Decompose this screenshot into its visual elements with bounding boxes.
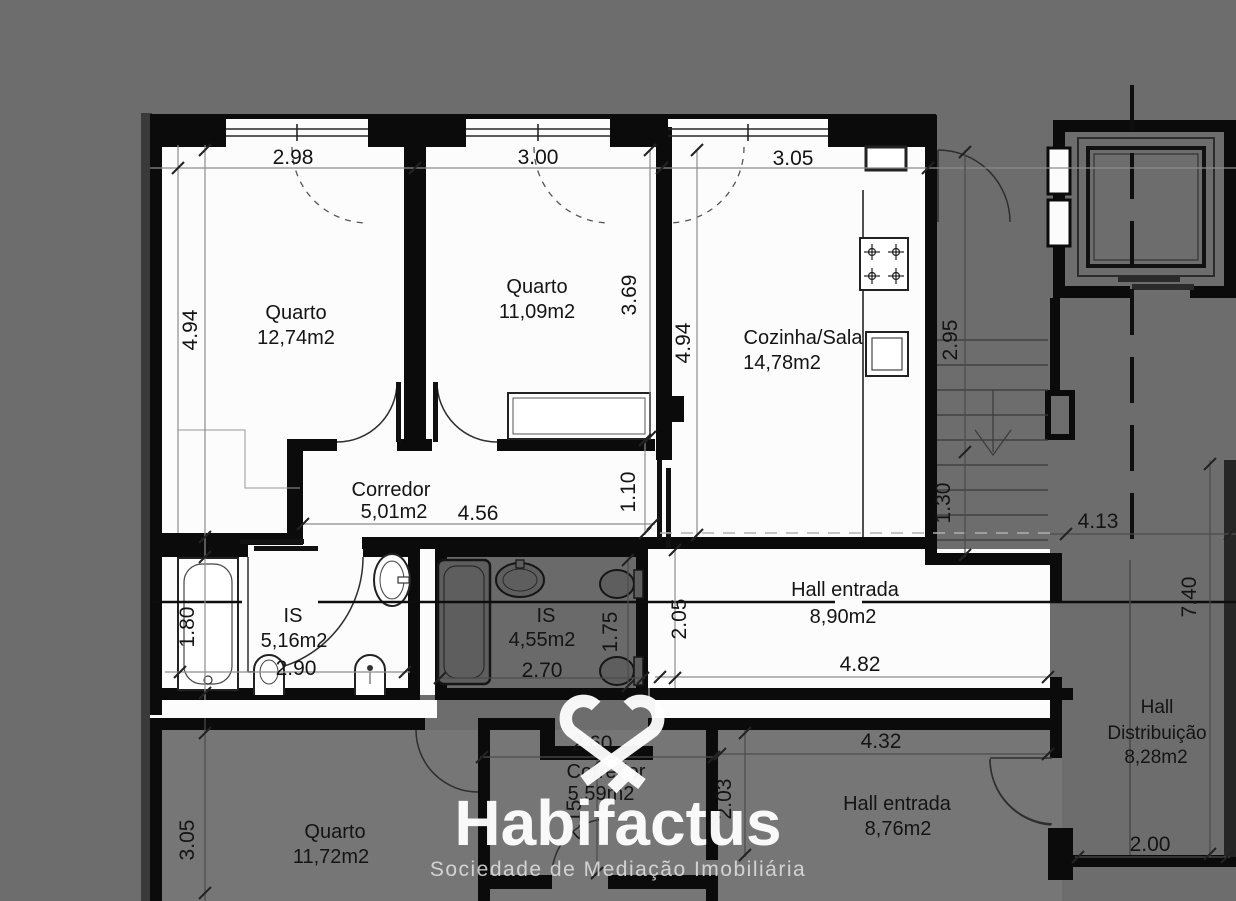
room-label-lower-hall-name: Hall entrada	[843, 793, 952, 815]
elevator-door	[1118, 276, 1180, 282]
dim-hall1-length: 4.82	[840, 653, 881, 676]
room-label-cozinha-name: Cozinha/Sala	[744, 327, 864, 349]
room-label-halldist-line1: Hall	[1141, 697, 1174, 718]
dim-corredor-width: 1.10	[617, 472, 640, 513]
pillar	[828, 114, 935, 147]
landing-wall	[930, 553, 1062, 565]
dim-is1-height: 1.80	[176, 607, 199, 648]
dim-halldist-width: 4.13	[1078, 510, 1119, 533]
dim-is1-width: 2.90	[276, 657, 317, 680]
floor-plan-svg: Quarto 12,74m2 Quarto 11,09m2 Cozinha/Sa…	[0, 0, 1236, 901]
sliding-door	[657, 460, 662, 540]
room-label-hall1-name: Hall entrada	[791, 579, 900, 601]
room-label-quarto2-area: 11,09m2	[499, 301, 575, 323]
dim-stairs-run: 1.30	[932, 483, 955, 524]
dim-lower-quarto-height: 3.05	[176, 820, 199, 861]
sliding-door	[240, 539, 304, 544]
cooktop	[860, 238, 908, 290]
dim-quarto2-height: 3.69	[618, 275, 641, 316]
room-label-halldist-area: 8,28m2	[1124, 747, 1187, 768]
dim-cozinha-width: 3.05	[773, 147, 814, 170]
room-label-lower-quarto-name: Quarto	[304, 821, 365, 843]
dim-stairs-width: 2.95	[939, 320, 962, 361]
pillar	[1048, 828, 1073, 880]
room-label-is2-name: IS	[537, 605, 556, 627]
dim-is2-width: 2.70	[522, 659, 563, 682]
dim-quarto1-height: 4.94	[179, 309, 202, 350]
watermark-tagline: Sociedade de Mediação Imobiliária	[430, 858, 806, 881]
room-label-corredor-area: 5,01m2	[361, 501, 428, 523]
bathtub-shaded	[438, 560, 490, 684]
dim-quarto1-width: 2.98	[273, 146, 314, 169]
duct-shaft	[1048, 148, 1070, 194]
room-label-lower-quarto-area: 11,72m2	[293, 846, 369, 868]
dim-halldist-lower: 2.00	[1130, 833, 1171, 856]
duct-shaft	[1048, 200, 1070, 246]
room-label-quarto2-name: Quarto	[506, 276, 567, 298]
dim-lower-hall-length: 4.32	[861, 730, 902, 753]
room-label-quarto1-name: Quarto	[265, 302, 326, 324]
toilet-shaded	[600, 570, 634, 598]
floorplan-canvas: Quarto 12,74m2 Quarto 11,09m2 Cozinha/Sa…	[0, 0, 1236, 901]
hall-bottom-wall	[650, 688, 1073, 700]
room-label-quarto1-area: 12,74m2	[257, 327, 335, 349]
wardrobe	[508, 393, 650, 439]
quarto-divider-wall	[404, 127, 426, 443]
dim-corredor-length: 4.56	[458, 502, 499, 525]
room-label-is1-name: IS	[284, 605, 303, 627]
dim-halldist-depth: 7.40	[1178, 577, 1201, 618]
dim-is2-height: 1.75	[599, 612, 622, 653]
dim-cozinha-height: 4.94	[672, 322, 695, 363]
room-label-cozinha-area: 14,78m2	[743, 352, 821, 374]
dim-quarto2-width: 3.00	[518, 146, 559, 169]
watermark-brand: Habifactus	[454, 787, 781, 859]
room-label-halldist-line2: Distribuição	[1107, 723, 1206, 744]
dim-hall1-height: 2.05	[668, 599, 691, 640]
room-label-lower-hall-area: 8,76m2	[865, 818, 932, 840]
room-label-hall1-area: 8,90m2	[810, 606, 877, 628]
room-label-corredor-name: Corredor	[352, 479, 431, 501]
room-label-is2-area: 4,55m2	[509, 629, 576, 651]
left-outer-wall	[150, 115, 162, 715]
bidet-shaded	[600, 657, 634, 685]
quarto2-cozinha-wall	[656, 127, 672, 460]
kitchen-cabinet	[866, 147, 906, 170]
room-label-is1-area: 5,16m2	[261, 630, 328, 652]
